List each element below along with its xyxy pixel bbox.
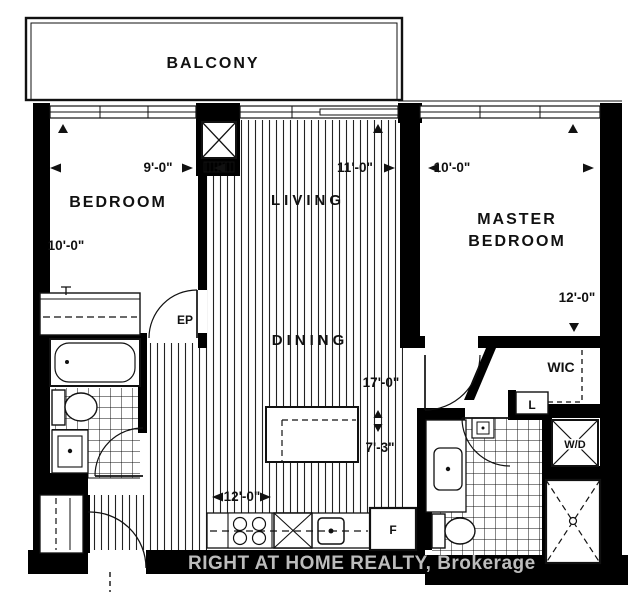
living-master-wall [400,103,420,348]
toilet-bowl [65,393,97,421]
entry-floor [90,495,147,550]
bedroom-label: BEDROOM [69,194,167,211]
arrow-right [583,164,594,173]
arrow-down [569,323,579,332]
stove-burner [234,518,247,531]
stove-burner [234,532,247,545]
windows [50,106,600,118]
master-label-line1: MASTER [477,211,557,228]
living-length-dim: 17'-0" [363,375,400,390]
washer-dryer-label: W/D [564,439,585,451]
shower [546,480,600,563]
arrow-left [50,164,61,173]
bedroom-depth-dim: 10'-0" [48,238,85,253]
right-exterior-wall [600,103,622,585]
fridge-label: F [389,523,396,537]
kitchen-island [266,407,358,462]
wic: WIC [547,350,582,402]
wall-niche [472,418,494,438]
kitchen-width-dim: 12'-0" [224,489,261,504]
linen-closet: L [516,392,548,414]
dining-label: DINING [272,332,349,349]
brokerage-watermark: RIGHT AT HOME REALTY, Brokerage [188,553,536,574]
entry-closet [40,495,83,553]
toilet-tank [52,390,65,425]
wic-label: WIC [547,359,574,375]
niche-dot [482,427,485,430]
entry-closet-top-wall [33,473,88,495]
bedroom: BEDROOM 9'-0" 10'-0" EP [40,160,197,338]
living-width-dim: 11'-0" [337,160,373,175]
toilet-bowl [445,518,475,544]
laundry: W/D [552,420,598,466]
sink-drain [68,449,72,453]
island-outline [266,407,358,462]
floor-plan-drawing: BALCONY [0,0,640,592]
hallway-floor [147,343,207,550]
bathroom2-top-wall-left [432,408,465,420]
master-label-line2: BEDROOM [468,233,566,250]
arrow-right [182,164,193,173]
closet-box [40,495,83,553]
balcony-label: BALCONY [166,55,259,72]
stove-burner [253,518,266,531]
shower-drain [570,518,577,525]
bedroom-closet [40,287,140,335]
balcony-sliding-door [320,109,398,115]
toilet-tank [432,514,445,548]
stove-burner [253,532,266,545]
sink-drain [446,467,450,471]
floor-plan: BALCONY [0,0,640,592]
bedroom-width-dim: 9'-0" [143,160,172,175]
living-label: LIVING [271,192,345,209]
bedroom-door-jamb [198,333,207,348]
arrow-up [568,124,578,133]
master-depth-dim: 12'-0" [559,290,596,305]
island-offset-dim: 7'-3" [365,440,394,455]
laundry-shower-wall [542,466,602,480]
vanity-1 [52,430,88,473]
master-bottom-wall-left [400,336,425,348]
arrow-up [58,124,68,133]
linen-label: L [528,398,535,412]
electrical-panel-label: EP [177,313,193,327]
bathtub-drain [65,360,69,364]
fridge: F [370,508,416,550]
master-width-dim: 10'-0" [434,160,471,175]
vanity-2 [426,420,466,512]
balcony: BALCONY [26,18,402,100]
column-shaft [202,122,236,172]
master-bottom-wall-right [478,336,600,348]
bathtub [50,339,140,386]
entry-closet-right-wall [83,495,90,553]
